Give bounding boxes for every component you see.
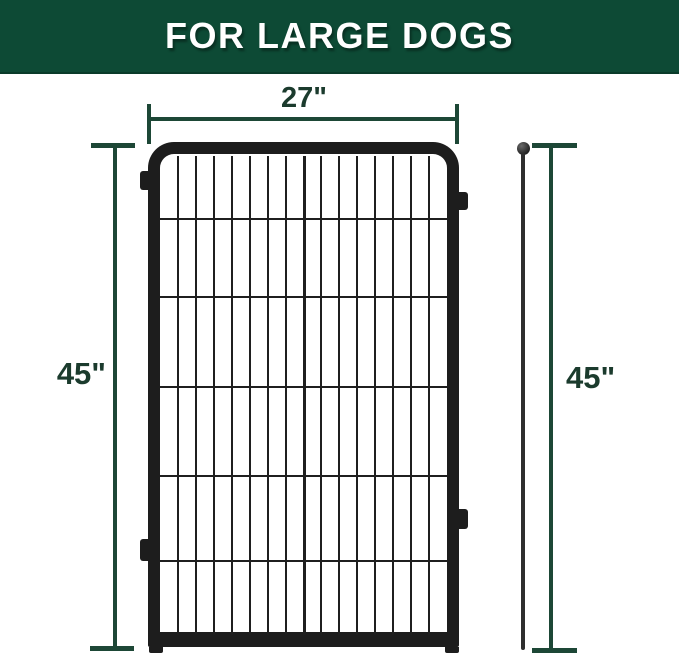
- fence-horizontal-wire: [160, 560, 447, 562]
- fence-horizontal-wire: [160, 218, 447, 220]
- width-dimension-label: 27": [149, 82, 459, 115]
- fence-vertical-bar: [356, 156, 358, 635]
- banner-title: FOR LARGE DOGS: [165, 15, 514, 57]
- fence-vertical-bar: [338, 156, 340, 635]
- fence-vertical-bar: [195, 156, 197, 635]
- fence-vertical-bar: [303, 156, 306, 635]
- banner: FOR LARGE DOGS: [0, 0, 679, 74]
- right-height-dimension-cap-top: [532, 143, 577, 148]
- connector-tab-right-bottom: [458, 509, 468, 529]
- left-height-dimension-label: 45": [36, 356, 106, 392]
- left-height-dimension-cap-top: [91, 143, 135, 148]
- fence-vertical-bar: [213, 156, 215, 635]
- fence-vertical-bar: [285, 156, 287, 635]
- product-dimension-diagram: FOR LARGE DOGS 27" 45" 45": [0, 0, 679, 655]
- left-height-dimension-line: [113, 145, 117, 647]
- fence-mesh: [160, 156, 447, 635]
- fence-horizontal-wire: [160, 386, 447, 388]
- fence-horizontal-wire: [160, 296, 447, 298]
- right-height-dimension-label: 45": [566, 360, 615, 396]
- width-dimension-line: [149, 117, 459, 121]
- fence-vertical-bar: [249, 156, 251, 635]
- stake-rod: [521, 153, 525, 650]
- width-dimension-cap-right: [455, 104, 459, 144]
- left-height-dimension-cap-bottom: [90, 646, 134, 651]
- fence-foot-right: [445, 647, 459, 653]
- connector-tab-right-top: [458, 192, 468, 210]
- width-dimension-cap-left: [147, 104, 151, 144]
- fence-foot-left: [149, 647, 163, 653]
- fence-vertical-bar: [320, 156, 322, 635]
- fence-vertical-bar: [428, 156, 430, 635]
- right-height-dimension-line: [549, 145, 553, 649]
- fence-vertical-bar: [410, 156, 412, 635]
- fence-vertical-bar: [267, 156, 269, 635]
- fence-vertical-bar: [392, 156, 394, 635]
- fence-vertical-bar: [374, 156, 376, 635]
- fence-vertical-bar: [231, 156, 233, 635]
- fence-vertical-bar: [177, 156, 179, 635]
- fence-horizontal-wire: [160, 475, 447, 477]
- right-height-dimension-cap-bottom: [532, 648, 577, 653]
